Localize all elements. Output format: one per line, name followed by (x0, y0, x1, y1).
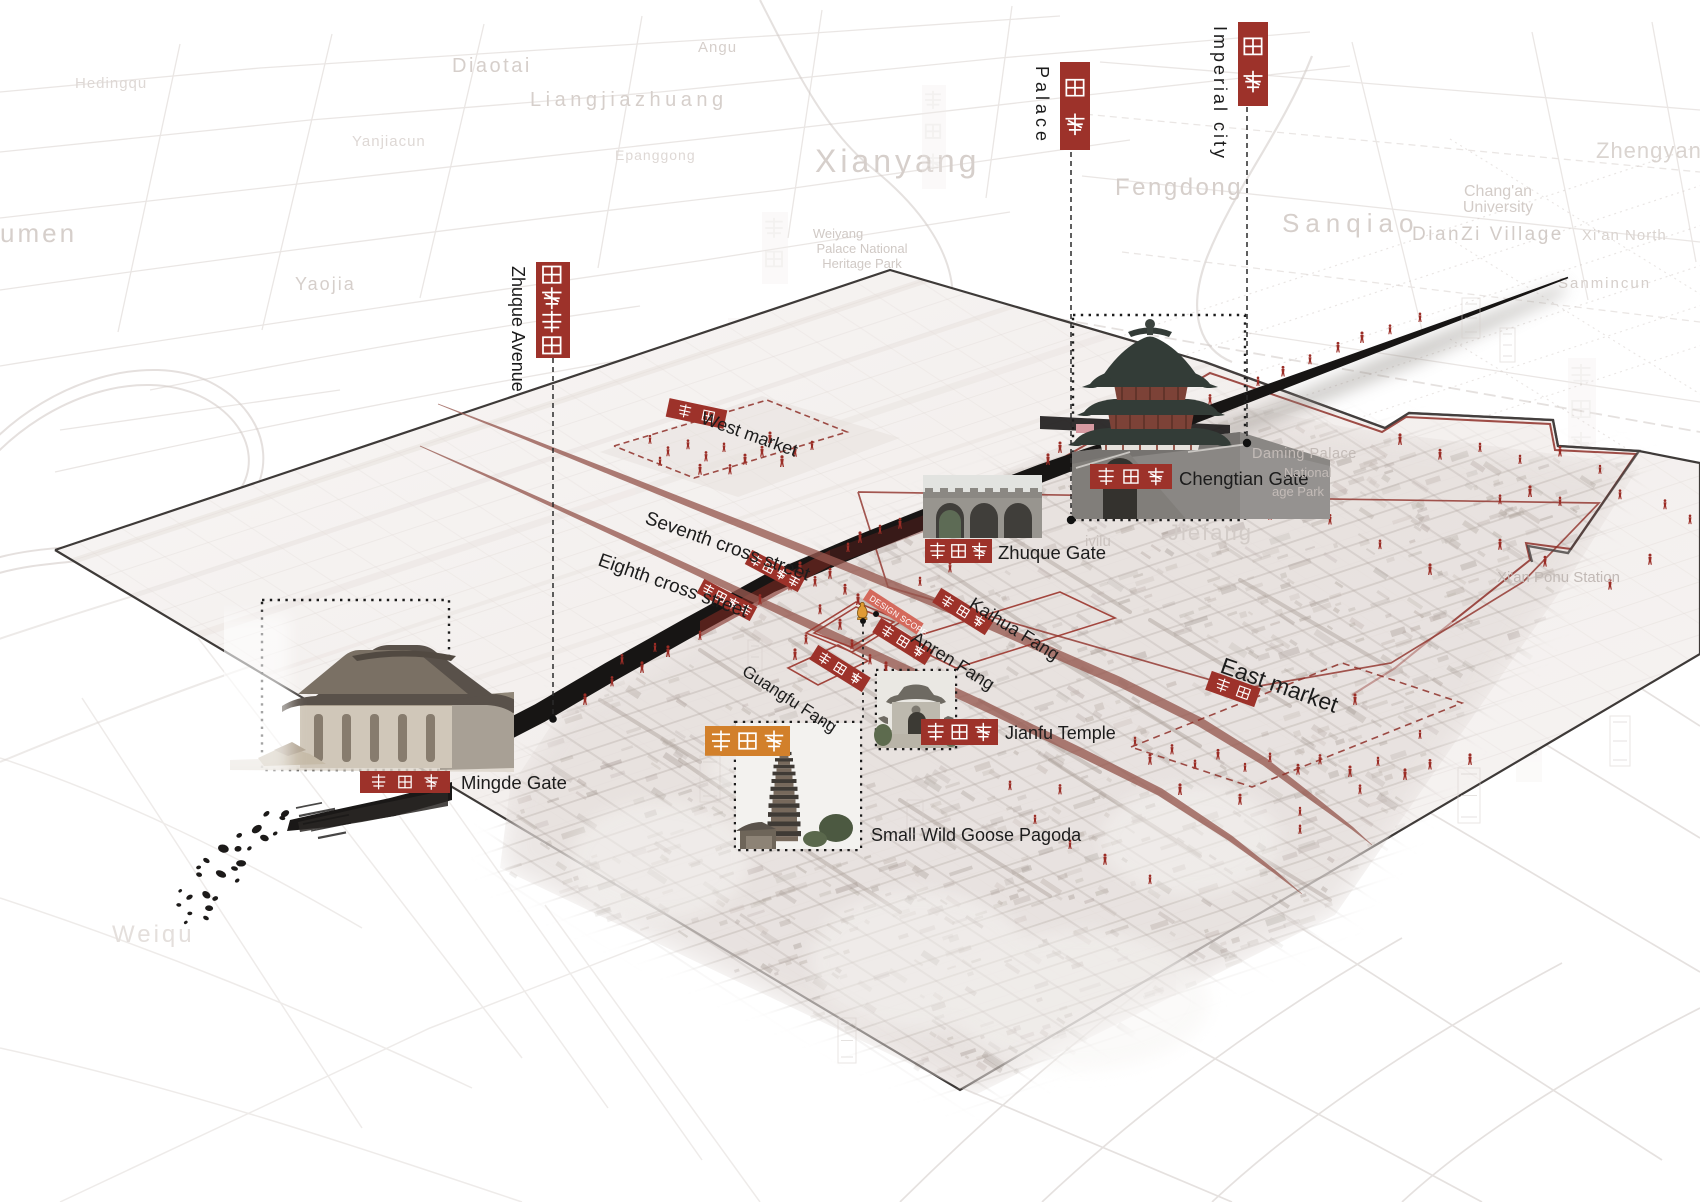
svg-text:Yaojia: Yaojia (295, 274, 356, 294)
svg-text:Daming Palace: Daming Palace (1252, 446, 1357, 462)
svg-text:age Park: age Park (1272, 484, 1325, 499)
svg-text:ivilu: ivilu (1085, 533, 1111, 550)
svg-text:National: National (1284, 465, 1332, 480)
svg-text:Palace National: Palace National (816, 241, 907, 256)
svg-text:Palace: Palace (1032, 66, 1052, 145)
svg-text:Small Wild Goose Pagoda: Small Wild Goose Pagoda (871, 825, 1082, 845)
svg-text:Jiefang: Jiefang (1168, 520, 1253, 545)
svg-text:Jianfu Temple: Jianfu Temple (1005, 723, 1116, 743)
svg-text:Yanjiacun: Yanjiacun (352, 133, 426, 150)
svg-text:Epanggong: Epanggong (615, 147, 696, 163)
svg-text:Xi'an Ponu Station: Xi'an Ponu Station (1497, 569, 1620, 586)
svg-text:Angu: Angu (698, 39, 737, 56)
svg-text:Zhuque Avenue: Zhuque Avenue (508, 266, 528, 392)
svg-text:Imperial city: Imperial city (1210, 26, 1230, 161)
svg-text:Mingde Gate: Mingde Gate (461, 772, 567, 793)
